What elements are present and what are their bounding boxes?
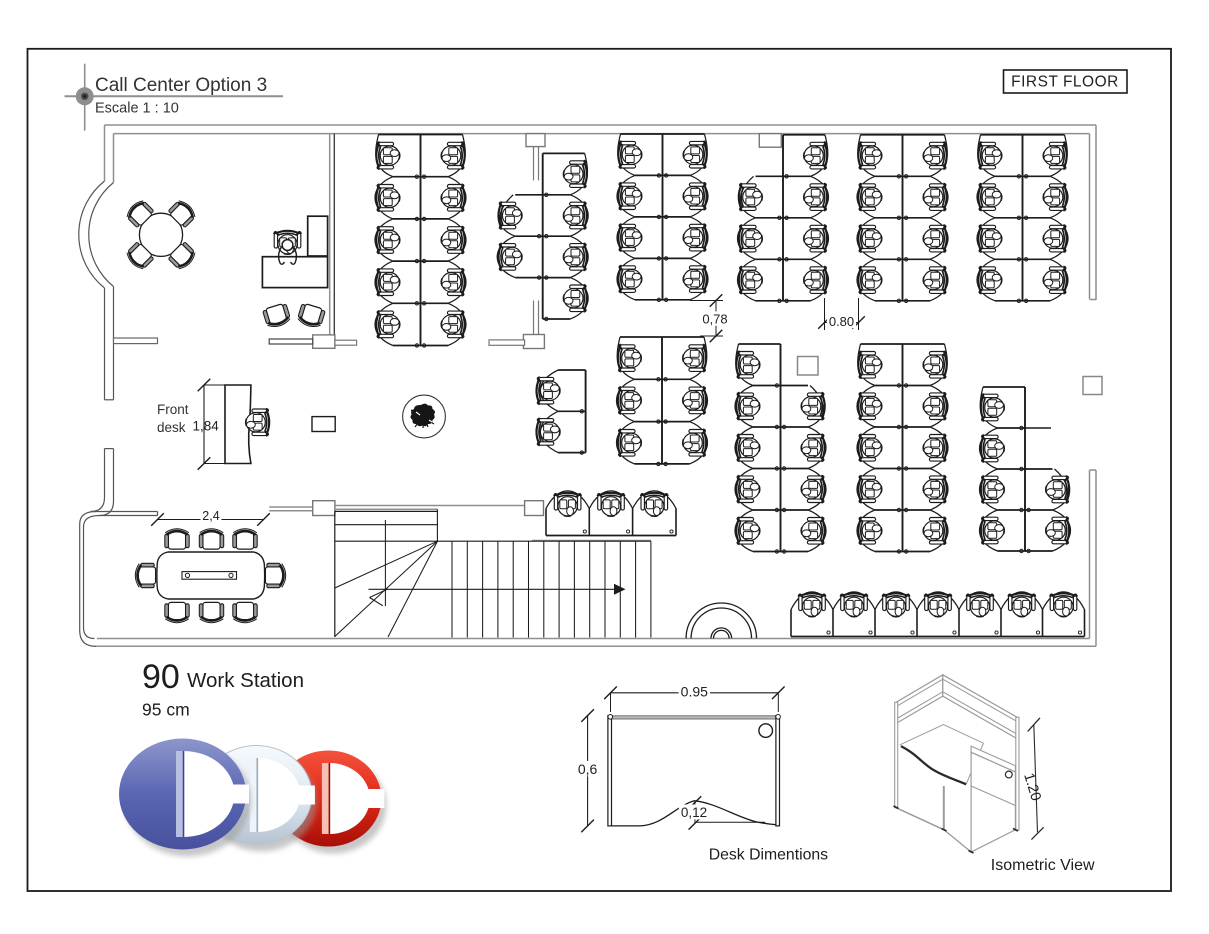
svg-text:Work Station: Work Station — [187, 669, 304, 692]
svg-text:Desk Dimentions: Desk Dimentions — [709, 847, 828, 864]
svg-text:95 cm: 95 cm — [142, 700, 190, 720]
svg-text:Call Center Option 3: Call Center Option 3 — [95, 75, 267, 96]
svg-text:Front: Front — [157, 402, 189, 417]
svg-text:0,78: 0,78 — [702, 312, 727, 327]
svg-text:0.80: 0.80 — [829, 314, 854, 329]
svg-text:0,12: 0,12 — [681, 805, 707, 820]
svg-text:2,4: 2,4 — [202, 509, 219, 523]
svg-text:0,6: 0,6 — [578, 761, 598, 777]
svg-text:1,84: 1,84 — [193, 419, 220, 434]
svg-text:0.95: 0.95 — [681, 684, 708, 700]
svg-text:desk: desk — [157, 420, 186, 435]
svg-text:Isometric View: Isometric View — [991, 857, 1095, 874]
svg-text:90: 90 — [142, 658, 180, 696]
svg-text:Escale 1 : 10: Escale 1 : 10 — [95, 101, 179, 117]
svg-text:FIRST FLOOR: FIRST FLOOR — [1011, 74, 1119, 91]
